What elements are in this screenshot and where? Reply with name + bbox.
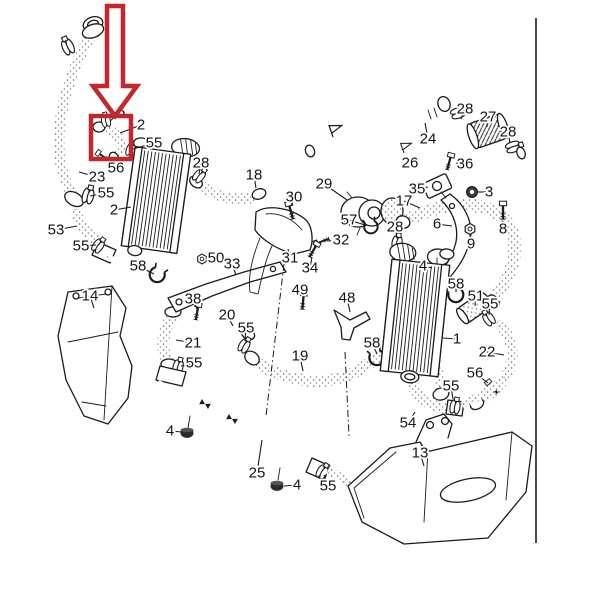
part-label-35: 35 [409,181,426,198]
part-label-2: 2 [110,202,118,219]
part-label-56: 56 [467,365,484,382]
part-label-28: 28 [500,124,517,141]
part-label-14: 14 [82,288,99,305]
part-label-13: 13 [412,445,429,462]
part-label-1: 1 [453,331,461,348]
part-label-30: 30 [286,189,303,206]
part-label-33: 33 [224,256,241,273]
part-label-36: 36 [457,156,474,173]
part-label-27: 27 [480,109,497,126]
part-label-28: 28 [457,101,474,118]
part-label-20: 20 [219,307,236,324]
part-label-55: 55 [73,238,90,255]
part-label-55: 55 [320,478,337,495]
part-label-22: 22 [479,344,496,361]
part-label-3: 3 [485,184,493,201]
part-label-6: 6 [433,216,441,233]
part-label-55: 55 [186,355,203,372]
part-label-25: 25 [249,465,266,482]
part-label-23: 23 [89,169,106,186]
part-label-32: 32 [333,232,350,249]
part-label-28: 28 [193,155,210,172]
part-label-55: 55 [443,378,460,395]
part-label-58: 58 [130,258,147,275]
part-label-55: 55 [238,320,255,337]
part-label-55: 55 [482,296,499,313]
part-label-38: 38 [185,291,202,308]
part-label-28: 28 [387,219,404,236]
part-label-26: 26 [402,155,419,172]
part-label-29: 29 [316,176,333,193]
part-label-2: 2 [137,117,145,134]
parts-diagram-page: 5255562355253552818581438202155554254551… [0,0,600,600]
part-label-53: 53 [48,222,65,239]
part-label-49: 49 [292,282,309,299]
part-label-19: 19 [292,348,309,365]
part-label-58: 58 [364,335,381,352]
diagram-canvas: 5255562355253552818581438202155554254551… [0,0,600,600]
part-label-9: 9 [467,236,475,253]
part-label-57: 57 [341,212,358,229]
part-label-8: 8 [499,221,507,238]
part-label-4: 4 [293,477,301,494]
part-label-24: 24 [420,131,437,148]
part-label-50: 50 [208,250,225,267]
part-label-48: 48 [339,290,356,307]
part-label-55: 55 [146,135,163,152]
part-label-18: 18 [246,167,263,184]
part-label-58: 58 [448,276,465,293]
part-label-4: 4 [166,423,174,440]
part-label-56: 56 [108,160,125,177]
part-label-54: 54 [400,415,417,432]
part-label-4: 4 [419,258,427,275]
part-label-55: 55 [98,185,115,202]
part-label-21: 21 [185,335,202,352]
part-label-31: 31 [282,250,299,267]
part-label-34: 34 [302,260,319,277]
